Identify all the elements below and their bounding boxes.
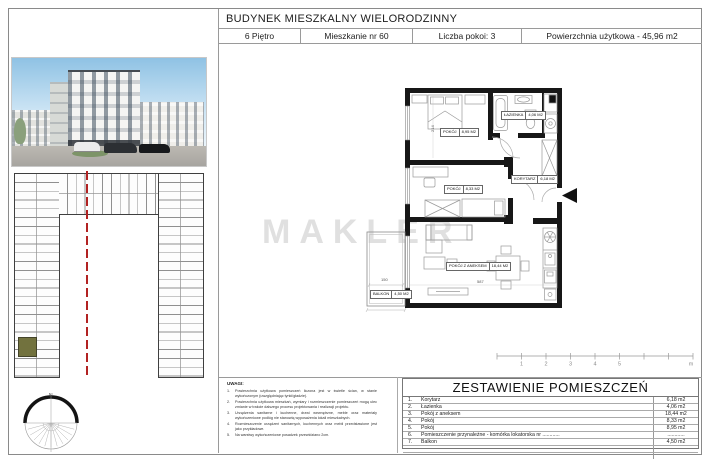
svg-text:1: 1 bbox=[520, 362, 523, 368]
table-row: 6. Pomieszczenie przynależne - komórka l… bbox=[403, 432, 698, 439]
room-label-bathroom: ŁAZIENKA 4,06 M2 bbox=[501, 111, 546, 120]
room-name: POKÓJ Z ANEKSEM bbox=[447, 263, 489, 270]
note-item: 5. Na warstwy wykończeniowe posadzek prz… bbox=[227, 433, 377, 438]
overview-top-bar bbox=[59, 173, 159, 215]
compass-rose-icon: N bbox=[22, 392, 82, 456]
table-row: 1. Korytarz 6,18 m2 bbox=[403, 397, 698, 404]
divider-left-column bbox=[218, 9, 219, 453]
building-floor-overview bbox=[12, 171, 208, 380]
building-render-photo bbox=[11, 57, 207, 167]
table-row-empty bbox=[403, 453, 698, 459]
plan-windows bbox=[406, 106, 410, 288]
header-cell-area: Powierzchnia użytkowa - 45,96 m2 bbox=[522, 29, 702, 43]
overview-section-line bbox=[86, 171, 88, 375]
note-item: 1. Powierzchnia użytkowa pomieszczeń lic… bbox=[227, 389, 377, 399]
apartment-card-page: BUDYNEK MIESZKALNY WIELORODZINNY 6 Piętr… bbox=[0, 0, 710, 464]
photo-car-dark-2 bbox=[139, 144, 170, 153]
room-name: POKÓJ bbox=[441, 129, 459, 136]
room-label-bedroom-1: POKÓJ 8,95 M2 bbox=[440, 128, 479, 137]
dim-living-width: 587 bbox=[477, 279, 484, 284]
overview-right-wing bbox=[158, 173, 204, 378]
header-cell-floor: 6 Piętro bbox=[219, 29, 301, 43]
note-item: 3. Urządzenia sanitarne i kuchenne, drzw… bbox=[227, 411, 377, 421]
header-info-row: 6 Piętro Mieszkanie nr 60 Liczba pokoi: … bbox=[219, 29, 702, 44]
divider-notes-table bbox=[397, 377, 398, 453]
header-cell-apartment: Mieszkanie nr 60 bbox=[301, 29, 413, 43]
table-row: 7. Balkon 4,50 m2 bbox=[403, 439, 698, 446]
plan-doors bbox=[492, 137, 556, 202]
page-title: BUDYNEK MIESZKALNY WIELORODZINNY bbox=[219, 9, 702, 29]
notes-title: UWAGI: bbox=[227, 381, 377, 387]
compass-north-label: N bbox=[49, 393, 53, 399]
table-row: 2. Łazienka 4,06 m2 bbox=[403, 404, 698, 411]
scale-bar: 1 2 3 4 5 m bbox=[495, 350, 699, 368]
dim-balcony-width: 150 bbox=[381, 277, 388, 282]
room-label-balcony: BALKON 4,50 M2 bbox=[370, 290, 412, 299]
photo-building-side-face bbox=[50, 82, 68, 152]
plan-walls bbox=[405, 88, 562, 308]
scale-bar-labels: 1 2 3 4 5 m bbox=[520, 362, 694, 368]
room-summary-table: ZESTAWIENIE POMIESZCZEŃ 1. Korytarz 6,18… bbox=[402, 378, 699, 449]
room-name: POKÓJ bbox=[445, 186, 463, 193]
entrance-arrow-icon bbox=[562, 188, 577, 203]
room-label-living: POKÓJ Z ANEKSEM 18,44 M2 bbox=[446, 262, 511, 271]
table-row: 4. Pokój 8,33 m2 bbox=[403, 418, 698, 425]
dim-bedroom-depth: 214 bbox=[430, 125, 435, 132]
photo-car-dark-1 bbox=[104, 143, 137, 153]
notes-block: UWAGI: 1. Powierzchnia użytkowa pomieszc… bbox=[227, 381, 377, 440]
table-row: 3. Pokój z aneksem 18,44 m2 bbox=[403, 411, 698, 418]
svg-text:4: 4 bbox=[593, 362, 596, 368]
room-area: 6,18 M2 bbox=[537, 176, 556, 183]
svg-text:5: 5 bbox=[618, 362, 621, 368]
scale-bar-unit: m bbox=[689, 362, 694, 368]
photo-right-wing bbox=[140, 102, 204, 148]
photo-car-white bbox=[74, 142, 100, 152]
header-cell-rooms: Liczba pokoi: 3 bbox=[413, 29, 522, 43]
room-name: KORYTARZ bbox=[512, 176, 537, 183]
room-area: 8,95 M2 bbox=[459, 129, 478, 136]
room-area: 4,50 M2 bbox=[391, 291, 410, 298]
room-area: 18,44 M2 bbox=[489, 263, 511, 270]
room-label-bedroom-2: POKÓJ 8,33 M2 bbox=[444, 185, 483, 194]
room-name: BALKON bbox=[371, 291, 391, 298]
table-row-empty bbox=[403, 446, 698, 453]
room-label-corridor: KORYTARZ 6,18 M2 bbox=[511, 175, 558, 184]
note-item: 2. Powierzchnia użytkowa mieszkań, wymia… bbox=[227, 400, 377, 410]
overview-highlighted-unit bbox=[18, 337, 37, 357]
room-area: 8,33 M2 bbox=[463, 186, 482, 193]
apartment-floor-plan bbox=[360, 80, 592, 315]
room-table-title: ZESTAWIENIE POMIESZCZEŃ bbox=[403, 379, 698, 397]
room-area: 4,06 M2 bbox=[525, 112, 544, 119]
room-name: ŁAZIENKA bbox=[502, 112, 525, 119]
note-item: 4. Rozmieszczenie urządzeń sanitarnych, … bbox=[227, 422, 377, 432]
svg-text:2: 2 bbox=[544, 362, 547, 368]
photo-tree bbox=[14, 118, 26, 144]
svg-text:3: 3 bbox=[569, 362, 572, 368]
table-row: 5. Pokój 8,95 m2 bbox=[403, 425, 698, 432]
